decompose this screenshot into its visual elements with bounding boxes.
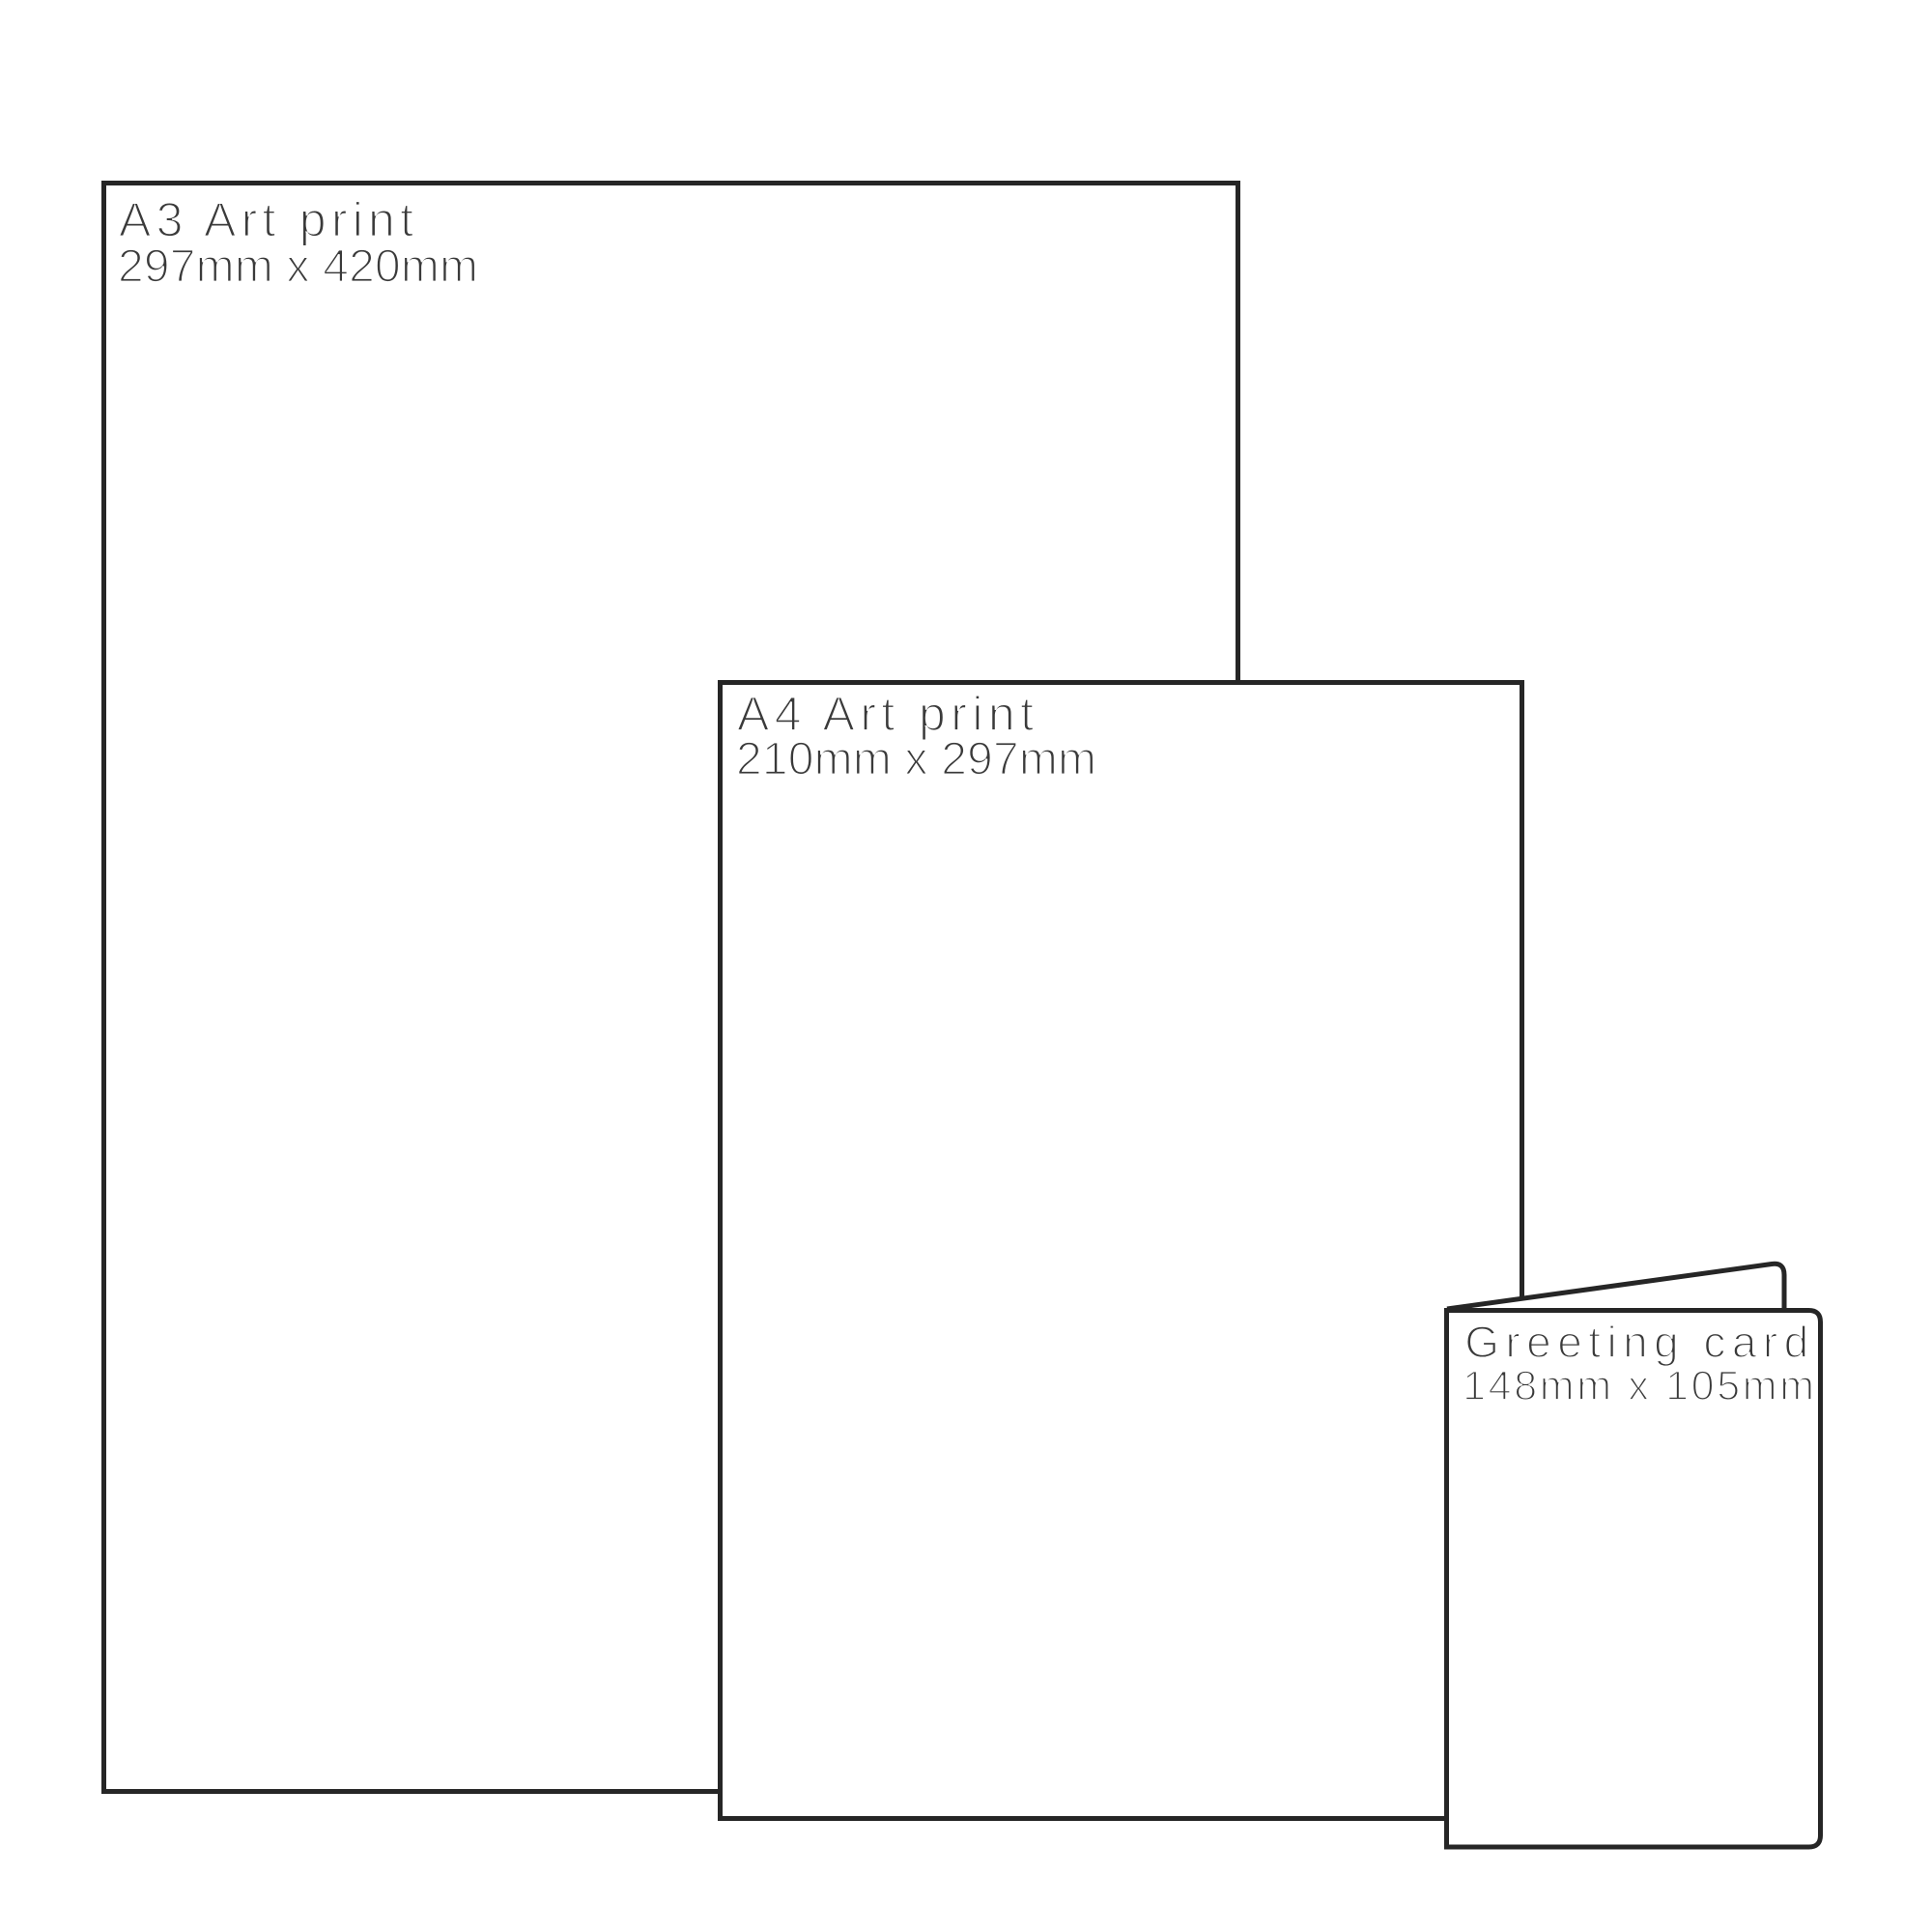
svg-text:210mm x 297mm: 210mm x 297mm (736, 734, 1096, 785)
svg-text:A3 Art print: A3 Art print (119, 193, 413, 247)
svg-text:148mm x 105mm: 148mm x 105mm (1463, 1363, 1814, 1409)
svg-text:297mm x 420mm: 297mm x 420mm (118, 241, 478, 293)
